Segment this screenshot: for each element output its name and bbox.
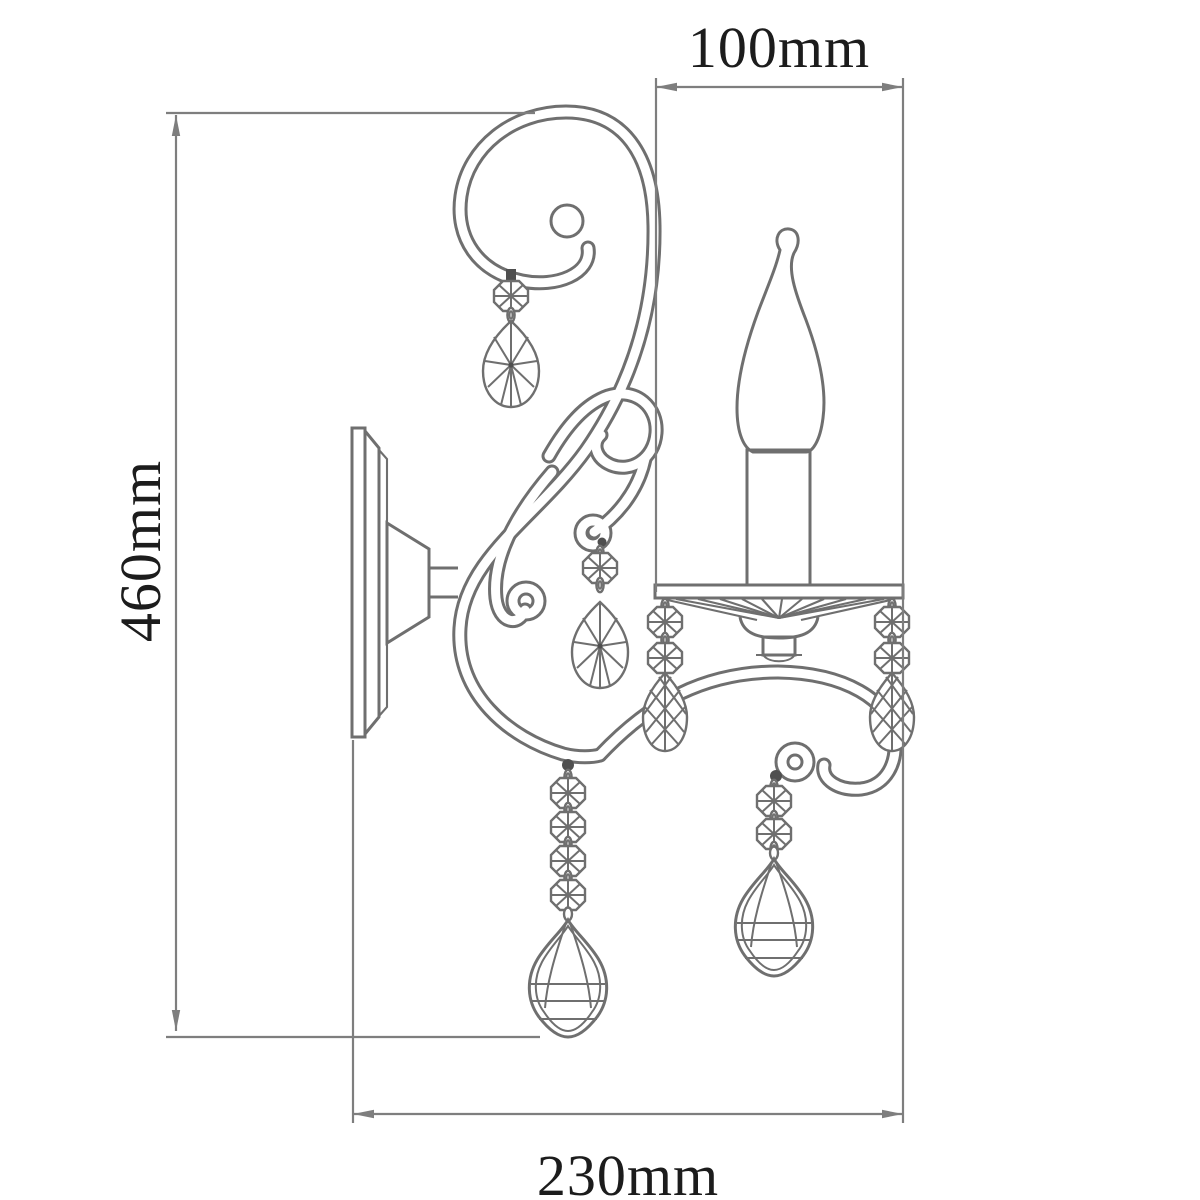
depth-dimension-label: 230mm	[537, 1147, 719, 1200]
bobeche	[655, 585, 903, 661]
sconce-line-art	[0, 0, 1200, 1200]
crystal-chain-bobeche-left	[643, 599, 687, 751]
scroll-center-circle	[551, 205, 583, 237]
dimension-depth-bottom	[353, 740, 903, 1123]
dimensional-drawing-page: 100mm 460mm 230mm	[0, 0, 1200, 1200]
top-width-dimension-label: 100mm	[688, 19, 870, 77]
candle	[737, 229, 824, 585]
flame-bulb	[737, 229, 824, 452]
height-dimension-label: 460mm	[112, 460, 170, 642]
crystal-chain-arm-right	[735, 770, 812, 976]
crystal-chain-mid-scroll	[572, 546, 628, 688]
wall-backplate	[352, 428, 458, 737]
crystal-chain-bobeche-right	[870, 599, 914, 751]
candle-sleeve	[747, 450, 810, 585]
crystal-chain-arm-left	[529, 759, 606, 1037]
